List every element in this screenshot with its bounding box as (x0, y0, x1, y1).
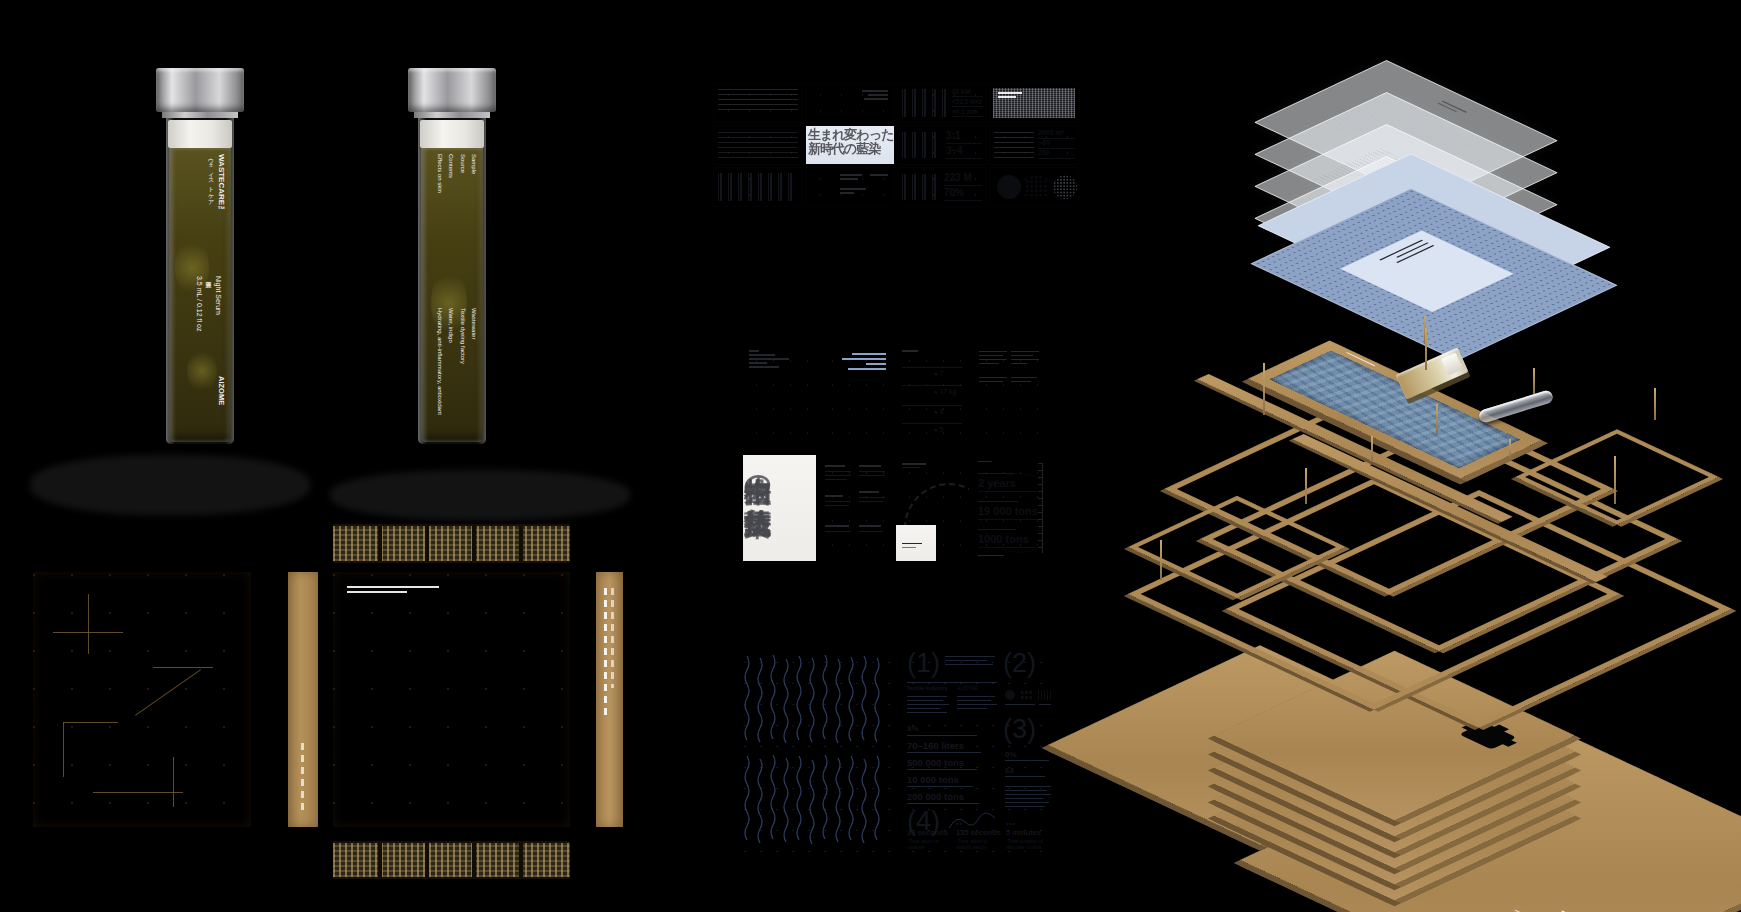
decor-mark (979, 351, 1007, 352)
decor-mark (994, 132, 1034, 158)
time-label-routine: ·Total duration of skincare routine (1006, 838, 1052, 850)
decor-mark (771, 655, 775, 739)
spec-label: Sample (468, 154, 479, 324)
decor-mark (979, 363, 999, 364)
decor-mark (825, 495, 843, 497)
solid-dot-icon (1005, 690, 1015, 700)
stat-reach: 223 M (944, 172, 982, 186)
cardboard-panel-creased (33, 572, 251, 827)
decor-mark (425, 526, 429, 561)
decor-mark (1011, 363, 1027, 364)
section-number-3: (3) (1003, 714, 1036, 745)
decor-mark (840, 192, 854, 194)
decor-mark (797, 756, 801, 840)
wooden-pin (1436, 404, 1438, 434)
spec-card-circle-samples (990, 168, 1078, 206)
decor-mark (907, 735, 977, 736)
wooden-pin (1654, 388, 1656, 420)
decor-mark (902, 89, 948, 117)
wooden-pin (1509, 439, 1511, 459)
decor-mark (866, 363, 886, 365)
decor-mark (797, 656, 801, 740)
vial-cap (156, 68, 244, 112)
decor-mark (902, 385, 962, 386)
stat-frequency: <52.5 kHz (952, 98, 983, 107)
decor-mark: 17 kg (940, 388, 957, 395)
impact-stat-saved: 1000 tons (978, 533, 1036, 548)
decor-mark (945, 656, 995, 657)
calligraphy-indigo: 植物由来の伝統藍染技法 (745, 457, 770, 559)
decor-mark (864, 98, 888, 100)
stat-ratio: 3:1 (946, 130, 982, 144)
decor-mark (1005, 760, 1049, 761)
stat-power: 20 kW (952, 88, 983, 97)
dot-marker-2: •• (956, 820, 963, 827)
chart-item: ● 6 (934, 408, 964, 416)
stat-area: 2000 m² (1038, 129, 1075, 139)
decor-mark (836, 758, 840, 842)
decor-mark (979, 355, 1003, 356)
decor-mark (979, 377, 1007, 378)
halftone-swatch (1053, 175, 1077, 199)
stat-dye-share: 8% (907, 724, 919, 733)
cardboard-edge-strip-top (333, 524, 570, 563)
decor-mark (862, 90, 888, 92)
chart-item: ● 17 kg (934, 388, 964, 396)
white-card-process-text (819, 455, 892, 561)
time-routine: 5 minutes (1006, 828, 1041, 837)
wooden-pin (1425, 328, 1427, 370)
spec-card-dense-data (990, 84, 1078, 122)
stat-chemical-waste: 10 000 tons (907, 774, 959, 785)
stat-count: 200 (1038, 149, 1075, 159)
decor-mark (902, 423, 962, 424)
decor-mark (1005, 798, 1043, 799)
decor-mark (902, 174, 940, 200)
decor-mark (825, 471, 851, 472)
dot-grid-icon (1020, 690, 1033, 700)
white-card-impact-stats: 2 years 19 000 tons 1000 tons (973, 455, 1046, 561)
decor-mark (907, 696, 947, 697)
decor-mark (957, 704, 997, 705)
vial-spec-labels: Sample Source Contents Effects on skin (433, 154, 479, 324)
decor-mark (957, 708, 987, 709)
spec-card-barcode (714, 168, 802, 206)
aizome-wastecare-presentation-board: WASTECARE™ ウェイストケア Night Serum 美容液 3.5 m… (0, 0, 1741, 912)
stat-dye-production: 500 000 tons (907, 757, 964, 768)
decor-mark (718, 89, 798, 113)
decor-mark (749, 350, 759, 352)
decor-mark (907, 708, 941, 709)
spec-label: Contents (445, 154, 456, 324)
decor-mark (173, 757, 174, 807)
decor-mark: 6 (940, 408, 944, 415)
decor-mark (611, 588, 614, 688)
vial-frosted-collar (168, 120, 232, 148)
white-card-dosage-chart: ● 7 ● 17 kg ● 6 ● 5 (896, 343, 969, 448)
spec-card-area-stats: 2000 m² ~60 200 (990, 126, 1078, 164)
spec-card-waveforms (714, 84, 802, 122)
decor-mark: 7 (940, 370, 944, 377)
stat-range: 3–4 (946, 145, 982, 159)
decor-mark (859, 501, 883, 502)
stat-approx: ~60 (1038, 139, 1075, 149)
time-label-cleanse: ·Time taken to cleanse (907, 838, 951, 850)
faint-shadow-shape (330, 470, 630, 520)
glass-tube (1478, 389, 1554, 424)
vial-volume: 3.5 mL / 0.12 fl oz (193, 276, 204, 426)
decor-mark (842, 358, 886, 360)
decor-mark (784, 659, 788, 743)
spec-value: Hydrating, anti-inflammatory, antioxidan… (433, 308, 444, 440)
decor-mark (849, 756, 853, 840)
decor-mark (978, 473, 1014, 474)
decor-mark (425, 843, 429, 877)
dot-marker-3: ••• (1006, 820, 1016, 827)
stat-ingredients: 63 (1005, 766, 1014, 775)
decor-mark (907, 752, 981, 753)
decor-mark (378, 843, 382, 877)
sheet-center-panel (1340, 230, 1513, 311)
decor-mark (1493, 725, 1509, 733)
decor-mark (902, 367, 962, 368)
decor-mark (1023, 704, 1035, 705)
decor-mark (1379, 240, 1422, 260)
spec-card-reach-stats: 223 M 70% (898, 168, 986, 206)
decor-mark (978, 529, 1016, 530)
decor-mark (1005, 790, 1047, 791)
decor-mark (875, 756, 879, 840)
decor-mark (1011, 355, 1033, 356)
decor-mark (907, 712, 947, 713)
decor-mark (1005, 786, 1051, 787)
decor-mark (840, 178, 858, 180)
time-cleanse: 30 seconds (907, 828, 948, 837)
white-card-fine-text (973, 343, 1046, 448)
decor-mark (957, 700, 991, 701)
spec-value: Water, indigo (445, 308, 456, 440)
stat-water-use: 70–150 liters (907, 740, 964, 751)
decor-mark (301, 743, 304, 813)
blue-card-dye-patterns (733, 648, 897, 853)
wooden-pin (1305, 468, 1307, 504)
wooden-pin (1533, 368, 1535, 394)
decor-mark (1501, 739, 1517, 746)
printed-text-line (347, 591, 407, 593)
faint-shadow-shape (30, 455, 310, 515)
cardboard-panel-printed (333, 572, 570, 827)
spec-card-ratio-stats: 3:1 3–4 (898, 126, 986, 164)
chart-item: ● 5 (934, 426, 964, 434)
decor-mark (810, 760, 814, 844)
wooden-pin (1614, 456, 1616, 504)
decor-mark (907, 704, 949, 705)
decor-mark (849, 657, 853, 741)
decor-mark (749, 366, 779, 368)
decor-mark (825, 475, 851, 476)
decor-mark (63, 722, 118, 723)
decor-mark (902, 543, 922, 544)
decor-mark (472, 843, 476, 877)
decor-mark (945, 664, 993, 665)
decor-mark (907, 682, 997, 683)
column-label-aizome: AIZOME (957, 685, 978, 691)
decor-mark (771, 755, 775, 839)
vial-maker: AIZOME (216, 376, 227, 436)
stat-tolerance: <0.1 mm (952, 108, 983, 117)
decor-mark (825, 525, 849, 527)
decor-mark (945, 660, 987, 661)
decor-mark (749, 354, 775, 356)
decor-mark (859, 475, 885, 476)
decor-mark (978, 461, 992, 462)
time-label-absorb: ·Time taken to absorb serum (956, 838, 1002, 850)
decor-mark (862, 759, 866, 843)
scale-ruler (1038, 463, 1043, 553)
indigo-squiggle-art (733, 648, 897, 853)
vial-serum-liquid: Sample Source Contents Effects on skin W… (421, 148, 483, 442)
decor-mark (825, 505, 849, 506)
decor-mark (93, 792, 183, 793)
decor-mark (862, 656, 866, 740)
vial-product-jp: 美容液 (204, 276, 213, 426)
decor-mark (902, 467, 920, 468)
decor-mark (998, 92, 1022, 94)
decor-mark (902, 350, 918, 352)
spec-card-calligraphy: 生まれ変わった新時代の藍染 (806, 126, 894, 164)
decor-mark (135, 669, 201, 716)
decor-mark (848, 368, 886, 370)
decor-mark (745, 656, 749, 740)
decor-mark (1011, 351, 1039, 352)
section-number-1: (1) (907, 648, 940, 679)
white-card-quote (819, 343, 892, 448)
calligraphy-headline: 生まれ変わった新時代の藍染 (808, 128, 894, 157)
serum-vial-front: WASTECARE™ ウェイストケア Night Serum 美容液 3.5 m… (156, 68, 246, 378)
vial-cap (408, 68, 496, 112)
stat-percent: 70% (944, 187, 982, 201)
white-card-cycle-diagram (896, 455, 969, 561)
decor-mark (749, 358, 789, 360)
decor-mark (1011, 377, 1037, 378)
puzzle-cutout (1459, 722, 1517, 749)
printed-text-line (347, 586, 439, 588)
decor-mark (63, 722, 64, 777)
decor-mark (998, 96, 1016, 98)
decor-mark (718, 132, 798, 158)
vial-serum-liquid: WASTECARE™ ウェイストケア Night Serum 美容液 3.5 m… (169, 148, 231, 442)
decor-mark (825, 501, 851, 502)
decor-mark (902, 132, 942, 158)
decor-mark: 5 (940, 426, 944, 433)
decor-mark (870, 174, 888, 176)
dot-pattern-swatch (1025, 175, 1049, 199)
decor-mark (88, 594, 89, 654)
decor-mark (718, 173, 798, 201)
cardboard-strip-left (288, 572, 318, 827)
decor-mark (902, 547, 916, 548)
spec-card-rules (714, 126, 802, 164)
decor-mark (1005, 704, 1023, 705)
vial-spec-values: Wastewater Textile dyeing factory Water,… (433, 308, 479, 440)
spec-value: Textile dyeing factory (456, 308, 467, 440)
decor-mark (902, 463, 926, 465)
decor-mark (907, 700, 943, 701)
serum-vial-back: Sample Source Contents Effects on skin W… (408, 68, 498, 378)
section-number-2: (2) (1003, 648, 1036, 679)
decor-mark (1011, 359, 1039, 360)
decor-mark (53, 632, 123, 633)
decor-mark (519, 843, 523, 877)
white-card-intro (743, 343, 816, 448)
stat-residue: 0% (1005, 750, 1017, 759)
decor-mark (825, 479, 847, 480)
decor-mark (825, 465, 845, 467)
decor-mark (749, 362, 767, 364)
impact-stat-total: 19 000 tons (978, 505, 1040, 520)
spec-label: Source (456, 154, 467, 324)
solid-circle-swatch (997, 175, 1021, 199)
decor-mark (378, 526, 382, 561)
wooden-pin (1263, 363, 1265, 415)
column-label-textile: Textile industry (907, 685, 947, 691)
decor-mark (472, 526, 476, 561)
decor-mark (153, 667, 213, 668)
cardboard-strip-right (596, 572, 623, 827)
decor-mark (1005, 776, 1045, 777)
stat-discharge: 200 000 tons (907, 791, 964, 802)
decor-mark (868, 94, 888, 96)
decor-mark (519, 526, 523, 561)
spec-card-notes (806, 84, 894, 122)
decor-mark (840, 174, 862, 176)
decor-mark (745, 756, 749, 840)
decor-mark (758, 759, 762, 843)
decor-mark (907, 803, 979, 804)
wooden-pin (1160, 540, 1162, 580)
decor-mark (979, 381, 1003, 382)
decor-mark (810, 658, 814, 742)
cardboard-edge-strip-bottom (333, 841, 570, 879)
white-card-calligraphy: 植物由来の伝統藍染技法 (743, 455, 816, 561)
decor-mark (875, 658, 879, 742)
decor-mark (840, 188, 866, 190)
decor-mark (859, 525, 881, 527)
decor-mark (823, 655, 827, 739)
spec-label: Effects on skin (433, 154, 444, 324)
striped-square-icon (1038, 690, 1051, 700)
decor-mark (859, 491, 879, 493)
decor-mark (979, 359, 1007, 360)
spec-value: Wastewater (468, 308, 479, 440)
blue-card-facts: (1) Textile industry AIZOME (2) 8% 70–15… (901, 648, 1056, 853)
decor-mark (836, 659, 840, 743)
decor-mark (859, 471, 885, 472)
decor-mark (784, 758, 788, 842)
decor-mark (825, 531, 851, 532)
decor-mark (852, 353, 886, 355)
decor-mark (907, 769, 977, 770)
decor-mark (859, 465, 881, 467)
chart-item: ● 7 (934, 370, 964, 378)
decor-mark (978, 501, 1018, 502)
decor-mark (1005, 794, 1051, 795)
decor-mark (758, 658, 762, 742)
impact-stat-duration: 2 years (978, 477, 1036, 492)
spec-card-textblocks (806, 168, 894, 206)
wooden-pin (1371, 436, 1373, 462)
decor-mark (1005, 802, 1049, 803)
decor-mark (902, 405, 962, 406)
decor-mark (859, 531, 883, 532)
decor-mark (604, 588, 607, 718)
decor-mark (907, 786, 973, 787)
vial-frosted-collar (420, 120, 484, 148)
decor-mark (823, 755, 827, 839)
carton-vial-window (1441, 353, 1463, 376)
time-absorb: 135 seconds (956, 828, 1001, 837)
decor-mark (978, 555, 1004, 556)
decor-mark (859, 497, 885, 498)
decor-mark (957, 696, 995, 697)
decor-mark (1011, 381, 1031, 382)
decor-mark (1039, 704, 1051, 705)
decor-mark (1005, 806, 1045, 807)
spec-card-power-stats: 20 kW <52.5 kHz <0.1 mm (898, 84, 986, 122)
